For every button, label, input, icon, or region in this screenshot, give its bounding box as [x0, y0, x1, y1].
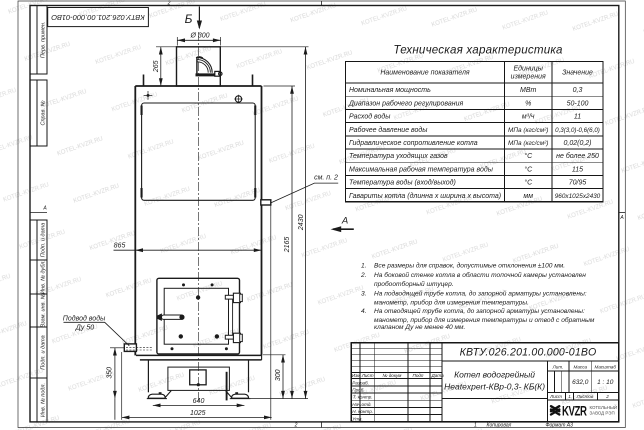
svg-text:Heatexpert-КВр-0,3- КБ(К): Heatexpert-КВр-0,3- КБ(К)	[444, 382, 545, 392]
svg-text:Подвод воды: Подвод воды	[63, 315, 106, 323]
svg-text:МВт: МВт	[520, 87, 537, 94]
svg-text:Все размеры для справок, допус: Все размеры для справок, допустимые откл…	[374, 261, 565, 269]
svg-text:А: А	[619, 215, 624, 221]
svg-text:КВТУ.026.201.00.000-01ВО: КВТУ.026.201.00.000-01ВО	[460, 347, 597, 359]
svg-text:Гидравлическое сопротивление к: Гидравлическое сопротивление котла	[349, 139, 478, 147]
svg-text:1025: 1025	[190, 410, 206, 417]
svg-text:115: 115	[572, 166, 583, 173]
svg-text:Т. контр.: Т. контр.	[353, 395, 373, 400]
svg-text:960х1025х2430: 960х1025х2430	[555, 193, 601, 200]
svg-text:Гавариты котла (длинна х ширин: Гавариты котла (длинна х ширина х высота…	[349, 192, 501, 200]
svg-text:Масштаб: Масштаб	[594, 365, 616, 370]
svg-text:На отводящей трубе котла, до з: На отводящей трубе котла, до запорной ар…	[374, 307, 585, 315]
svg-text:Максимальная рабочая температу: Максимальная рабочая температура воды	[349, 165, 494, 173]
svg-text:265: 265	[153, 60, 160, 73]
svg-text:Копировал: Копировал	[487, 423, 512, 429]
svg-text:°С: °С	[524, 152, 533, 160]
svg-text:50-100: 50-100	[567, 100, 589, 107]
svg-text:Н. контр.: Н. контр.	[352, 409, 373, 414]
svg-text:Единицы: Единицы	[514, 65, 544, 73]
svg-text:Дата: Дата	[431, 373, 445, 378]
svg-text:Изм: Изм	[352, 373, 361, 378]
svg-text:Инв. № дубл.: Инв. № дубл.	[41, 260, 47, 294]
svg-text:640: 640	[193, 398, 205, 405]
svg-text:3.: 3.	[361, 290, 367, 297]
svg-text:4.: 4.	[361, 308, 367, 315]
svg-text:МПа (кгс/см²): МПа (кгс/см²)	[508, 140, 548, 147]
svg-text:Подп. и дата: Подп. и дата	[41, 223, 47, 257]
svg-text:2430: 2430	[298, 214, 305, 231]
svg-text:Разраб.: Разраб.	[352, 380, 369, 385]
svg-text:Диапазон рабочего регулировани: Диапазон рабочего регулирования	[348, 99, 464, 107]
svg-text:Ø 300: Ø 300	[189, 33, 209, 40]
svg-text:70/95: 70/95	[569, 180, 587, 187]
svg-text:632,0: 632,0	[572, 379, 589, 386]
svg-text:мм: мм	[523, 193, 533, 200]
svg-text:Перв. примен.: Перв. примен.	[41, 22, 47, 59]
svg-text:0,02(0,2): 0,02(0,2)	[563, 140, 591, 147]
svg-text:1: 1	[568, 394, 571, 399]
svg-text:Инв. № подл.: Инв. № подл.	[41, 383, 47, 417]
svg-text:350: 350	[107, 367, 114, 379]
svg-text:°С: °С	[524, 179, 533, 187]
svg-text:1.: 1.	[361, 262, 367, 269]
svg-text:Справ. №: Справ. №	[41, 100, 47, 125]
svg-text:Проб.: Проб.	[352, 388, 364, 393]
svg-text:Лист: Лист	[549, 394, 562, 399]
svg-text:Температура уходящих газов: Температура уходящих газов	[349, 152, 448, 160]
svg-text:Наименование показателя: Наименование показателя	[380, 69, 470, 76]
svg-text:1: 1	[474, 423, 477, 429]
svg-text:манометр, прибор для измерения: манометр, прибор для измерения температу…	[374, 316, 595, 324]
svg-text:КВТУ.026.201.00.000-01ВО: КВТУ.026.201.00.000-01ВО	[51, 13, 145, 22]
svg-text:м³/ч: м³/ч	[522, 114, 535, 121]
svg-text:Техническая характеристика: Техническая характеристика	[393, 44, 563, 57]
svg-text:11: 11	[574, 114, 581, 121]
svg-text:см. п. 2: см. п. 2	[314, 174, 338, 181]
svg-text:865: 865	[114, 243, 126, 250]
svg-text:KVZR: KVZR	[562, 404, 587, 419]
svg-text:Листов: Листов	[576, 394, 594, 399]
svg-text:Формат А3: Формат А3	[546, 423, 574, 429]
svg-text:Номинальная мощность: Номинальная мощность	[349, 87, 431, 94]
svg-text:На боковой стенке котла в обла: На боковой стенке котла в области топочн…	[374, 271, 586, 279]
svg-text:2165: 2165	[284, 237, 291, 254]
svg-text:Взам. инв. №: Взам. инв. №	[41, 293, 47, 327]
svg-text:А: А	[42, 206, 47, 212]
svg-text:0,3: 0,3	[573, 87, 583, 94]
svg-text:клапаном Ду не менее 40 мм.: клапаном Ду не менее 40 мм.	[374, 324, 466, 331]
svg-text:°С: °С	[524, 165, 533, 173]
svg-text:манометр, прибор для измерения: манометр, прибор для измерения температу…	[374, 298, 529, 306]
svg-text:Значение: Значение	[562, 69, 593, 76]
svg-text:А: А	[341, 216, 348, 227]
svg-text:%: %	[525, 100, 531, 107]
svg-text:Б: Б	[185, 12, 193, 26]
svg-text:300: 300	[275, 369, 282, 381]
svg-text:КОТЕЛЬНЫЙ: КОТЕЛЬНЫЙ	[590, 405, 618, 410]
svg-text:2: 2	[167, 1, 171, 7]
svg-text:Утв.: Утв.	[352, 416, 362, 421]
svg-text:Масса: Масса	[574, 365, 588, 370]
svg-text:Подп: Подп	[413, 373, 424, 378]
svg-text:1 : 10: 1 : 10	[597, 379, 614, 386]
svg-text:2: 2	[605, 394, 609, 399]
svg-text:№ докум: № докум	[383, 373, 403, 378]
svg-text:Рабочее давление воды: Рабочее давление воды	[349, 126, 428, 134]
svg-text:ЗАВОД РЭП: ЗАВОД РЭП	[590, 411, 615, 416]
svg-text:Расход воды: Расход воды	[349, 113, 391, 121]
svg-text:На подводящей трубе котла, до: На подводящей трубе котла, до запорной а…	[374, 289, 587, 297]
svg-text:измерения: измерения	[511, 74, 546, 81]
svg-text:пробоотборный штуцер.: пробоотборный штуцер.	[374, 280, 454, 288]
svg-text:Подп. и дата: Подп. и дата	[41, 335, 47, 369]
svg-text:Лист: Лист	[361, 373, 374, 378]
svg-text:МПа (кгс/см²): МПа (кгс/см²)	[508, 127, 548, 134]
svg-text:0,3(3,0)-0,6(6,0): 0,3(3,0)-0,6(6,0)	[555, 127, 600, 134]
svg-text:2.: 2.	[360, 272, 367, 279]
svg-text:Нач.отд.: Нач.отд.	[352, 402, 371, 407]
svg-text:2: 2	[294, 423, 298, 429]
svg-text:не более 250: не более 250	[556, 152, 599, 160]
svg-text:Температура воды (вход/выход): Температура воды (вход/выход)	[349, 179, 456, 187]
svg-text:Котел водогрейный: Котел водогрейный	[454, 369, 535, 379]
svg-text:Лит.: Лит.	[552, 365, 564, 370]
svg-text:Ду 50: Ду 50	[75, 324, 94, 331]
